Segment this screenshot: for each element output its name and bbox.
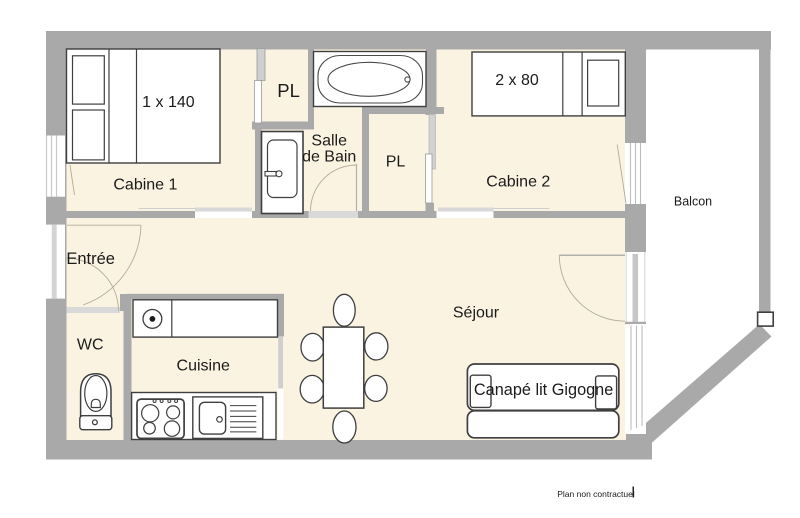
svg-text:Cabine 1: Cabine 1: [113, 176, 177, 193]
svg-text:Balcon: Balcon: [674, 195, 712, 209]
svg-text:1 x 140: 1 x 140: [142, 94, 195, 111]
svg-text:PL: PL: [386, 154, 406, 171]
svg-text:Plan non contractuel: Plan non contractuel: [557, 489, 635, 499]
svg-text:Canapé lit Gigogne: Canapé lit Gigogne: [474, 381, 613, 399]
svg-text:2 x 80: 2 x 80: [495, 72, 539, 89]
svg-text:Salle: Salle: [311, 133, 347, 150]
svg-text:Cabine 2: Cabine 2: [486, 173, 550, 190]
svg-text:Entrée: Entrée: [66, 250, 115, 268]
svg-text:Cuisine: Cuisine: [177, 357, 230, 374]
svg-text:Séjour: Séjour: [453, 305, 500, 322]
svg-text:de Bain: de Bain: [302, 148, 356, 165]
svg-text:PL: PL: [277, 80, 300, 101]
svg-text:WC: WC: [77, 337, 104, 354]
